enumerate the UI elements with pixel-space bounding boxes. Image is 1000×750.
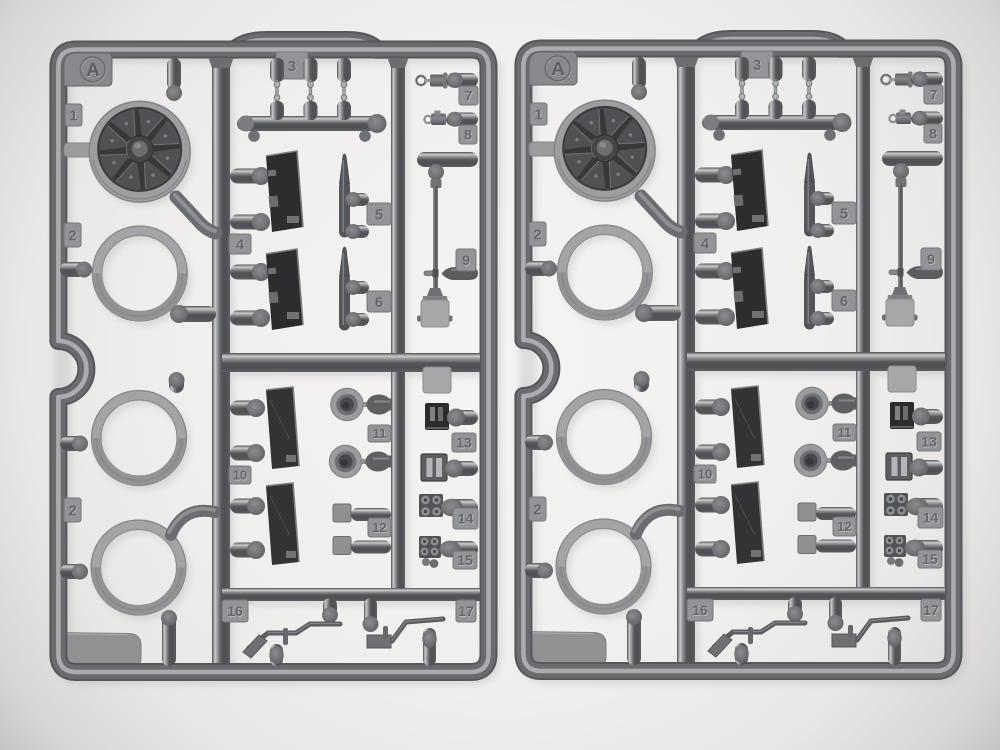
svg-text:9: 9 (927, 251, 935, 267)
svg-text:12: 12 (837, 519, 851, 534)
svg-text:1: 1 (534, 106, 542, 123)
svg-text:12: 12 (372, 520, 386, 535)
svg-text:8: 8 (929, 126, 937, 142)
svg-text:2: 2 (68, 227, 76, 244)
svg-text:6: 6 (375, 294, 383, 311)
svg-text:14: 14 (923, 510, 939, 526)
svg-text:13: 13 (456, 435, 472, 451)
svg-text:3: 3 (288, 58, 296, 75)
svg-text:13: 13 (921, 434, 937, 450)
svg-text:8: 8 (464, 127, 472, 143)
svg-text:17: 17 (923, 602, 939, 618)
svg-text:15: 15 (922, 551, 938, 567)
svg-text:4: 4 (701, 235, 710, 252)
svg-text:2: 2 (68, 502, 76, 519)
svg-text:2: 2 (533, 226, 541, 243)
svg-text:2: 2 (533, 501, 541, 518)
svg-text:16: 16 (227, 603, 243, 619)
svg-text:15: 15 (457, 552, 473, 568)
svg-text:A: A (551, 58, 564, 79)
svg-text:11: 11 (838, 425, 852, 440)
svg-text:10: 10 (698, 467, 712, 482)
svg-text:A: A (86, 59, 99, 80)
svg-text:3: 3 (753, 57, 761, 74)
svg-text:9: 9 (462, 252, 470, 268)
svg-text:17: 17 (458, 603, 474, 619)
svg-text:14: 14 (458, 511, 474, 527)
svg-text:7: 7 (930, 87, 938, 103)
svg-text:5: 5 (375, 206, 383, 223)
svg-text:7: 7 (465, 88, 473, 104)
svg-text:10: 10 (233, 468, 247, 483)
svg-text:6: 6 (840, 293, 848, 310)
svg-text:5: 5 (840, 205, 848, 222)
svg-text:4: 4 (236, 236, 245, 253)
svg-text:1: 1 (69, 107, 77, 124)
svg-text:16: 16 (692, 602, 708, 618)
svg-text:11: 11 (373, 426, 387, 441)
